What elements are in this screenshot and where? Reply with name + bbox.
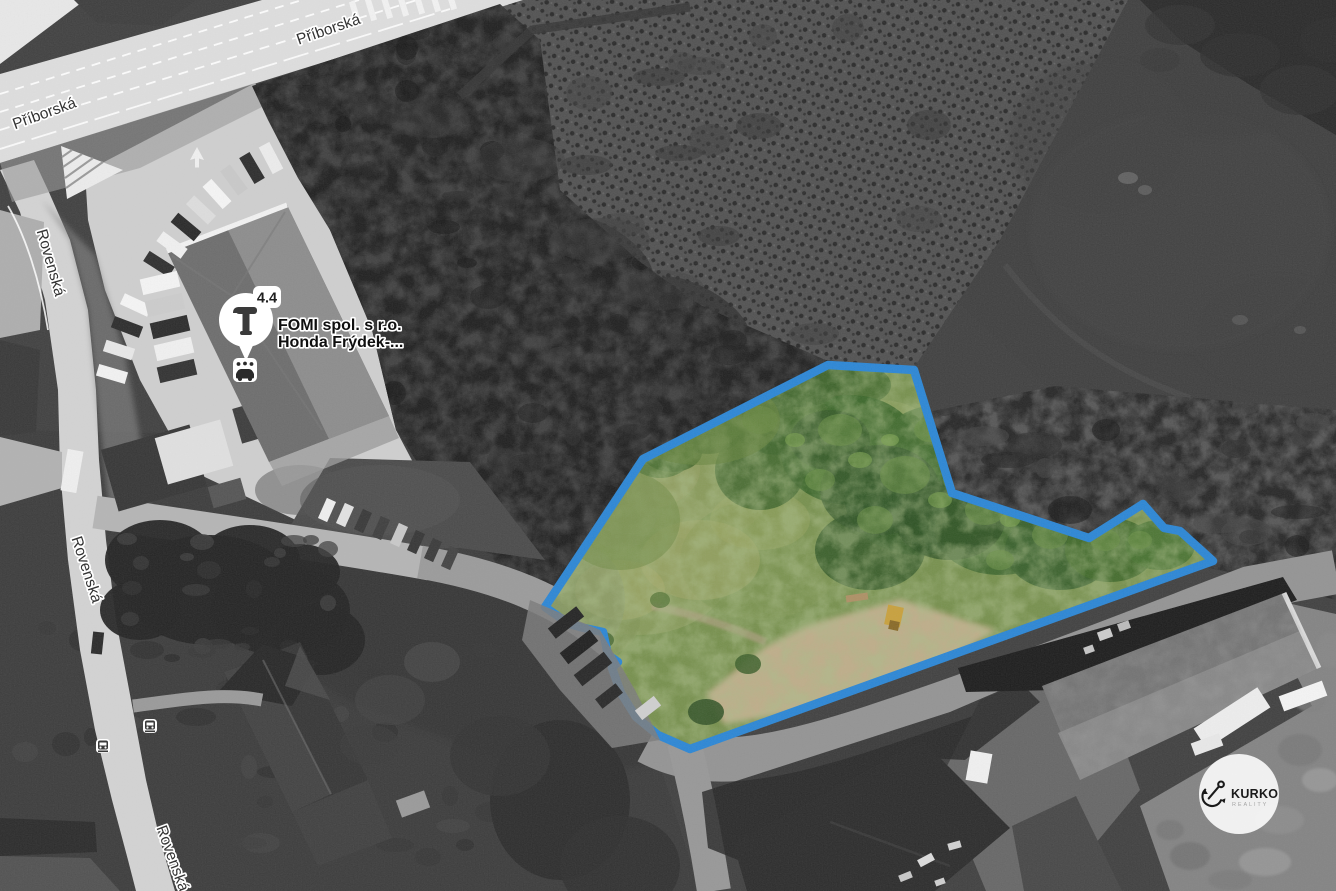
svg-text:KURKO: KURKO [1231, 787, 1278, 801]
svg-text:FOMI spol. s r.o.: FOMI spol. s r.o. [278, 317, 402, 334]
svg-text:Honda Frýdek-...: Honda Frýdek-... [278, 334, 403, 351]
svg-text:4.4: 4.4 [257, 291, 277, 307]
svg-text:REALITY: REALITY [1232, 802, 1268, 808]
